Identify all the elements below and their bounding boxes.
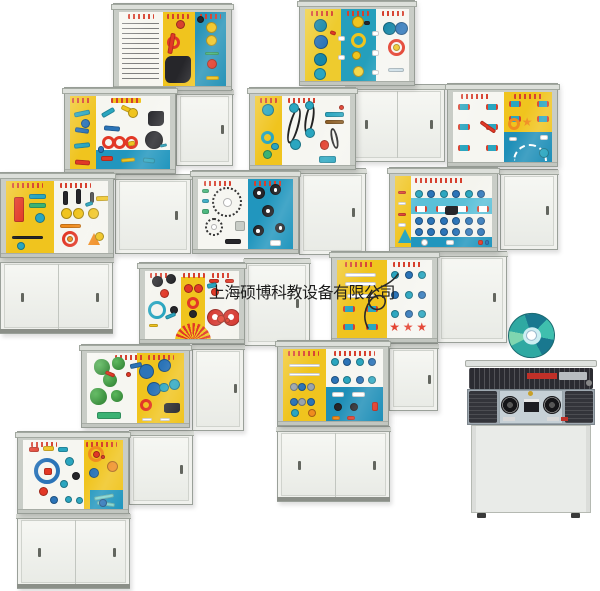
console-top-lid [465,360,597,367]
display-window [23,440,123,509]
glass-reflection [70,96,170,169]
display-window [198,179,293,249]
glass-reflection [23,440,123,509]
glass-reflection [395,176,492,247]
console-dial-left [501,396,519,414]
console-dial-right [543,396,561,414]
cabinet-lid [387,168,500,174]
cd-disc [505,310,558,361]
cabinet-lid [329,252,440,258]
console-cassette-slot [524,399,539,412]
glass-reflection [198,179,293,249]
cabinet-lid [137,263,247,269]
cabinet-lid [79,345,192,351]
glass-reflection [283,349,383,421]
cab-02 [299,0,415,86]
display-sill [300,81,414,85]
cabinet-lid [62,88,178,94]
console-red-display [527,373,557,379]
console-speaker-left [469,391,497,423]
display-sill [278,421,388,425]
console-power-light [528,391,533,396]
glass-reflection [255,96,350,165]
display-sill [140,339,244,343]
display-sill [250,165,355,169]
console-foot-left [477,513,486,518]
control-console [465,360,597,518]
display-window [70,96,170,169]
cab-12 [277,340,389,426]
display-sill [82,423,189,427]
console-label-left [503,417,515,421]
display-sill [193,249,298,253]
cab-13 [17,431,129,514]
cab-05: ★ [447,83,558,167]
cab-11 [81,344,190,428]
pen-squiggle-mark [355,265,405,335]
display-window [305,9,409,81]
cabinet-lid [0,173,116,179]
cab-08 [389,167,498,252]
display-sill [448,162,557,166]
display-window [283,349,383,421]
cab-09 [139,262,245,344]
console-red-tab [561,417,568,421]
console-speaker-right [565,391,593,423]
display-window [119,12,226,86]
display-window: ★ [453,92,552,162]
glass-reflection [87,353,184,423]
display-window [6,181,108,253]
cabinet-lid [297,1,417,7]
display-sill [1,253,113,257]
cabinet-lid [247,88,358,94]
product-photo-collage: ★★★★ 上海硕博科教设备有限公司 [0,0,600,591]
glass-reflection [119,12,226,86]
console-label-right [547,417,559,421]
display-sill [18,509,128,513]
display-window [395,176,492,247]
glass-reflection [6,181,108,253]
cabinet-lid [445,84,560,90]
cab-01 [113,3,232,91]
cabinet-lid [15,432,131,438]
console-foot-right [571,513,580,518]
cabinet-lid [275,341,391,347]
cab-06 [0,172,114,258]
cab-07 [192,170,299,254]
console-body [471,425,591,513]
cabinet-lid [190,171,301,177]
console-deck-knob [586,380,592,386]
console-tape-deck [559,372,587,380]
glass-reflection [305,9,409,81]
display-window [87,353,184,423]
cab-04 [249,87,356,170]
display-window [255,96,350,165]
cab-03 [64,87,176,174]
cabinet-lid [111,4,234,10]
glass-reflection [453,92,552,162]
